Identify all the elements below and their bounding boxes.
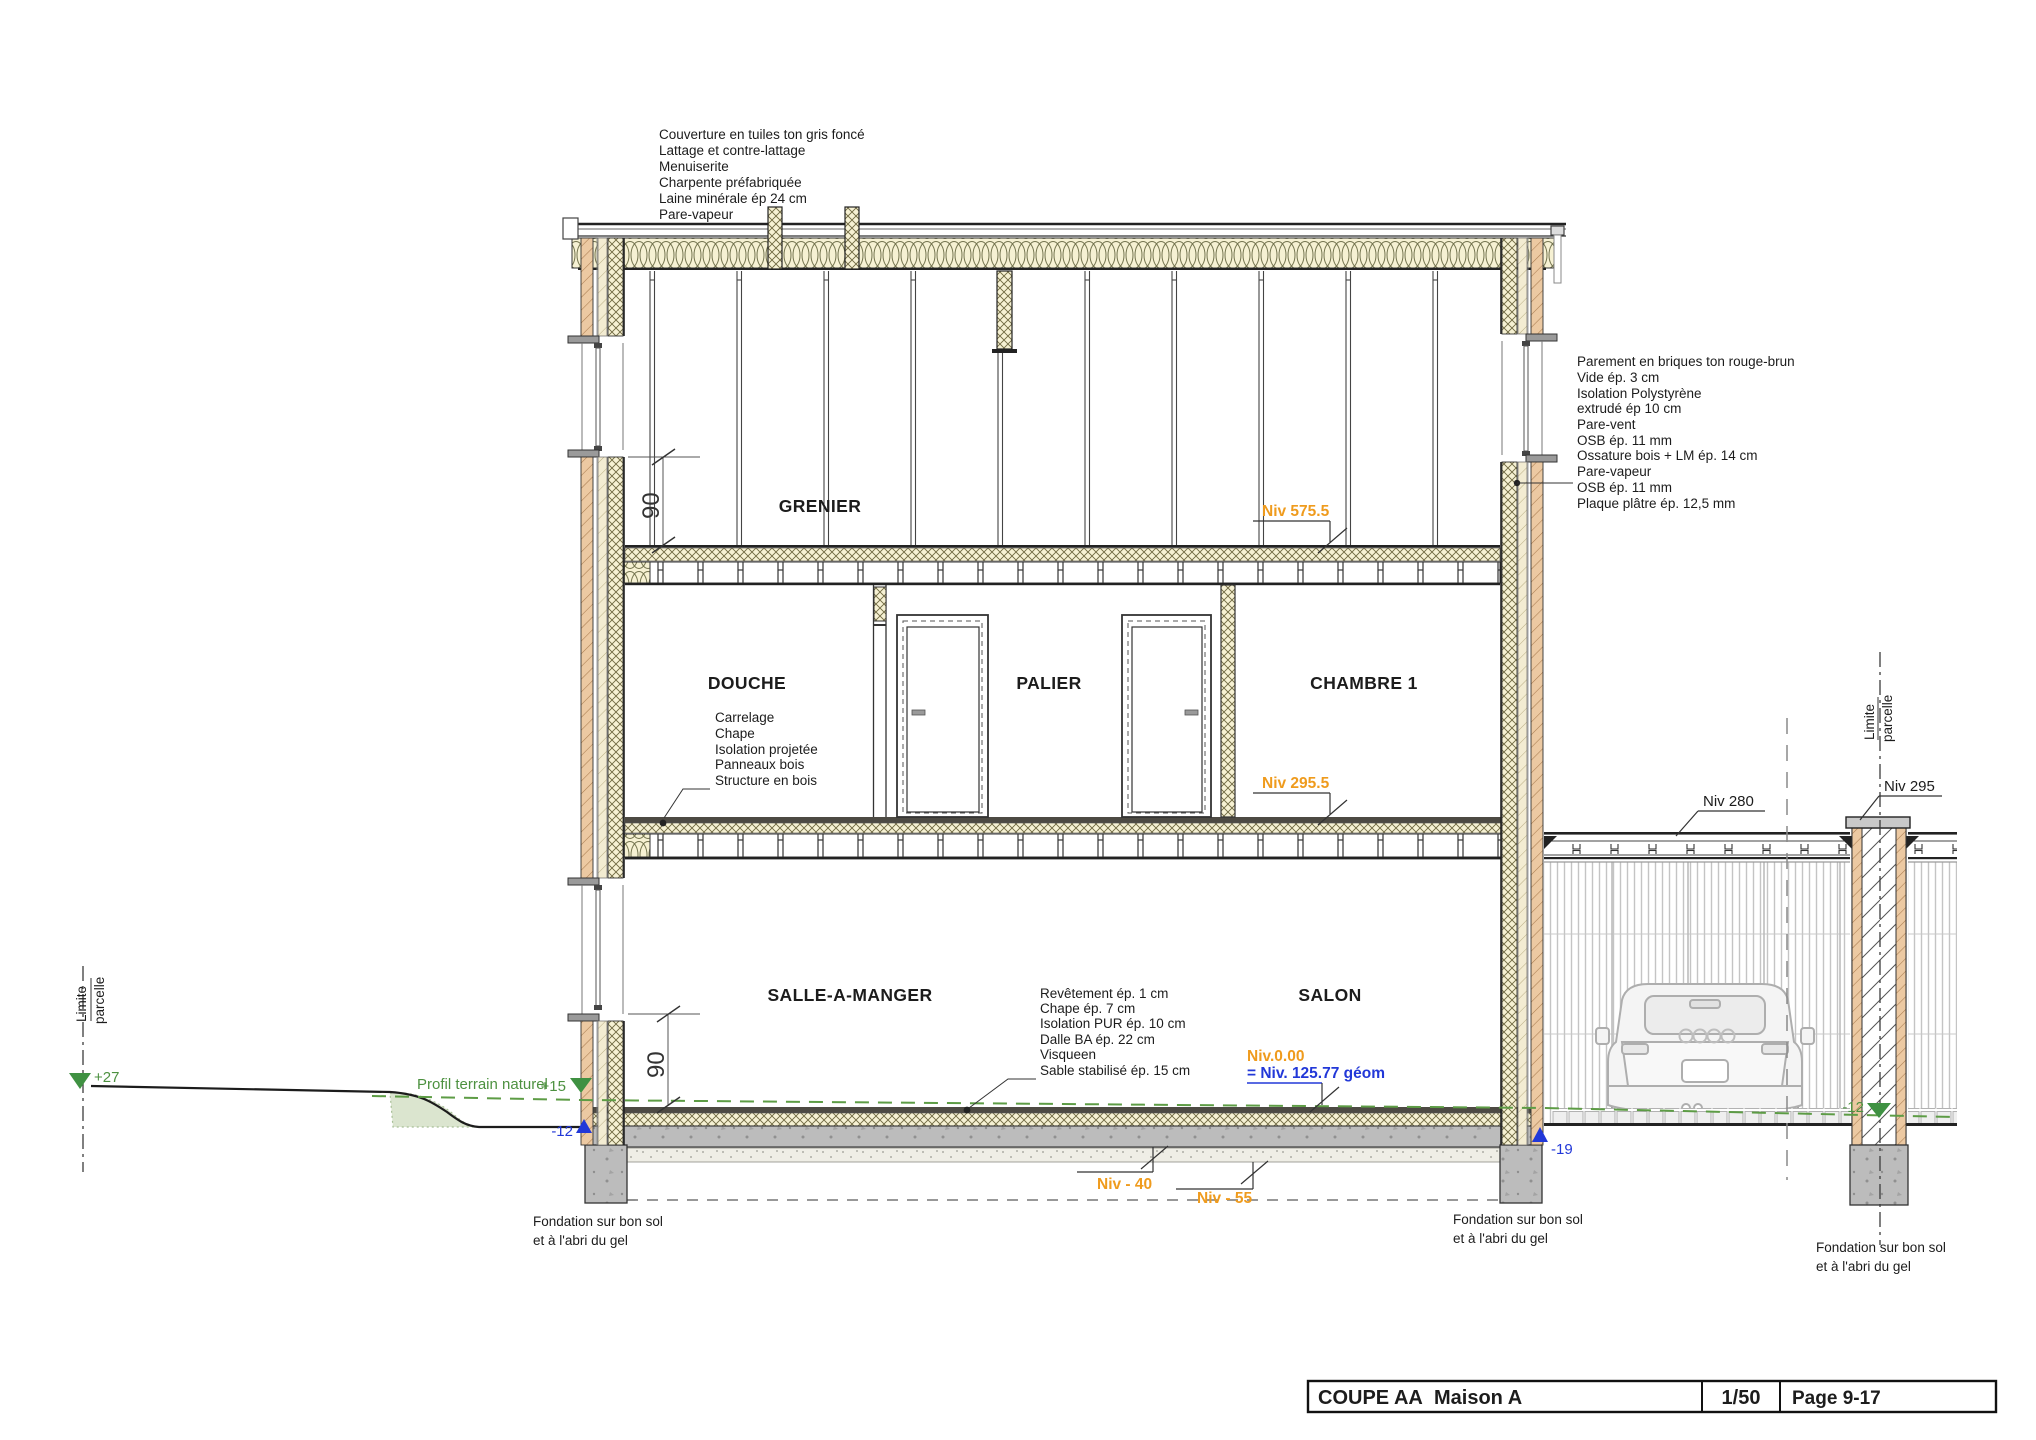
gutter-right xyxy=(1554,235,1561,283)
marker-minus12-right: -12 xyxy=(1842,1099,1864,1116)
foundation-right xyxy=(1500,1145,1542,1203)
boundary-left-label-1: Limite xyxy=(74,986,89,1022)
slab-note: Revêtement ép. 1 cm Chape ép. 7 cm Isola… xyxy=(964,986,1190,1113)
level-sand-bottom-text: Niv - 55 xyxy=(1197,1190,1253,1207)
wall-note-line: Ossature bois + LM ép. 14 cm xyxy=(1577,448,1757,463)
attic-floor xyxy=(613,545,1500,585)
marker-minus12-left: -12 xyxy=(551,1123,573,1140)
boundary-right-label-1: Limite xyxy=(1862,704,1877,740)
dim-attic-value: 90 xyxy=(638,492,665,519)
ground-slab xyxy=(582,1107,1542,1203)
dim-ground-value: 90 xyxy=(643,1051,670,1078)
window-head-attic-right xyxy=(1526,334,1557,341)
wall-note-line: Pare-vent xyxy=(1577,417,1636,432)
marker-plus27: +27 xyxy=(94,1069,119,1086)
wall-left-seg-mid xyxy=(581,457,624,878)
boundary-pillar xyxy=(1846,817,1910,1205)
wall-note-line: Parement en briques ton rouge-brun xyxy=(1577,354,1795,369)
car-mirror-left xyxy=(1596,1028,1609,1044)
level-pillar-top-text: Niv 295 xyxy=(1884,778,1935,795)
level-ground-text: Niv.0.00 xyxy=(1247,1048,1304,1065)
car-taillight-left xyxy=(1622,1044,1648,1054)
wall-note-line: Pare-vapeur xyxy=(1577,464,1652,479)
level-carport-roof: Niv 280 xyxy=(1676,793,1765,836)
title-block-title: COUPE AA xyxy=(1318,1387,1423,1409)
door-2-handle xyxy=(1185,710,1198,715)
roof-note-line: Menuiserite xyxy=(659,159,729,174)
car-taillight-right xyxy=(1762,1044,1788,1054)
car-plate xyxy=(1682,1060,1728,1082)
carport xyxy=(1544,652,1957,1245)
partition-palier-chambre xyxy=(1221,585,1235,817)
terrain-profile-label: Profil terrain naturel xyxy=(417,1076,548,1093)
boundary-left-label-2: parcelle xyxy=(92,977,107,1024)
room-label-grenier: GRENIER xyxy=(779,496,862,516)
marker-minus19: -19 xyxy=(1551,1141,1573,1158)
window-attic-right xyxy=(1502,341,1542,456)
car-mirror-right xyxy=(1801,1028,1814,1044)
door-1-leaf xyxy=(907,627,979,812)
level-attic-floor-text: Niv 575.5 xyxy=(1262,503,1330,520)
wall-right-seg-top xyxy=(1501,238,1543,334)
slab-note-line: Isolation PUR ép. 10 cm xyxy=(1040,1016,1186,1031)
foundation-note-line: Fondation sur bon sol xyxy=(1453,1212,1583,1227)
wall-note-line: extrudé ép 10 cm xyxy=(1577,401,1681,416)
dim-ground-90: 90 xyxy=(628,1006,700,1113)
window-head-attic-left xyxy=(568,336,599,343)
window-ground-left xyxy=(582,885,623,1014)
wall-note-line: Plaque plâtre ép. 12,5 mm xyxy=(1577,496,1735,511)
room-label-chambre1: CHAMBRE 1 xyxy=(1310,673,1418,693)
level-ground: Niv.0.00 = Niv. 125.77 géom xyxy=(1247,1048,1385,1112)
roof-duct-2 xyxy=(845,207,859,269)
pillar-foundation xyxy=(1850,1145,1908,1205)
foundation-note-middle: Fondation sur bon sol et à l'abri du gel xyxy=(1453,1212,1583,1246)
wall-note-line: Isolation Polystyrène xyxy=(1577,386,1702,401)
upper-floor-note-line: Structure en bois xyxy=(715,773,817,788)
foundation-note-line: Fondation sur bon sol xyxy=(1816,1240,1946,1255)
boundary-right-label: Limite parcelle xyxy=(1862,695,1895,742)
window-sill-ground-left xyxy=(568,1014,599,1021)
door-2 xyxy=(1122,615,1211,817)
foundation-note-left: Fondation sur bon sol et à l'abri du gel xyxy=(533,1214,663,1248)
level-pillar-top: Niv 295 xyxy=(1860,778,1942,820)
level-slab-bottom-text: Niv - 40 xyxy=(1097,1176,1152,1193)
window-sill-attic-left xyxy=(568,450,599,457)
upper-floor-note-line: Carrelage xyxy=(715,710,774,725)
concrete-slab xyxy=(585,1126,1540,1147)
carport-fence-right xyxy=(1908,862,1957,1123)
roof-note-line: Couverture en tuiles ton gris foncé xyxy=(659,127,865,142)
level-ground-geo-text: = Niv. 125.77 géom xyxy=(1247,1065,1385,1082)
pillar-cap xyxy=(1846,817,1910,828)
slab-note-line: Chape ép. 7 cm xyxy=(1040,1001,1135,1016)
foundation-note-line: Fondation sur bon sol xyxy=(533,1214,663,1229)
foundation-note-line: et à l'abri du gel xyxy=(1816,1259,1911,1274)
door-1-handle xyxy=(912,710,925,715)
boundary-left: Limite parcelle +27 xyxy=(69,966,119,1172)
roof-note-line: Laine minérale ép 24 cm xyxy=(659,191,807,206)
drawing-sheet: Limite parcelle +27 Limite parcelle +15 … xyxy=(0,0,2036,1440)
room-label-salle-a-manger: SALLE-A-MANGER xyxy=(767,985,932,1005)
wall-note: Parement en briques ton rouge-brun Vide … xyxy=(1514,354,1795,511)
roof-note: Couverture en tuiles ton gris foncé Latt… xyxy=(659,127,865,222)
roof-note-line: Charpente préfabriquée xyxy=(659,175,802,190)
window-sill-attic-right xyxy=(1526,455,1557,462)
door-2-leaf xyxy=(1132,627,1202,812)
upper-floor-note: Carrelage Chape Isolation projetée Panne… xyxy=(660,710,818,826)
marker-plus27-arrow xyxy=(69,1073,91,1089)
window-attic-left xyxy=(582,343,623,451)
partition-douche-palier xyxy=(874,585,887,817)
eave-left xyxy=(563,218,578,239)
roof-insulation xyxy=(572,238,1560,268)
slab-note-line: Revêtement ép. 1 cm xyxy=(1040,986,1168,1001)
eave-right xyxy=(1551,226,1564,235)
section-drawing: Limite parcelle +27 Limite parcelle +15 … xyxy=(0,0,2036,1440)
title-block-variant: Maison A xyxy=(1434,1387,1522,1409)
upper-floor-note-line: Panneaux bois xyxy=(715,757,805,772)
room-label-douche: DOUCHE xyxy=(708,673,786,693)
slab-note-line: Visqueen xyxy=(1040,1047,1096,1062)
attic-duct xyxy=(997,271,1012,349)
foundation-note-right: Fondation sur bon sol et à l'abri du gel xyxy=(1816,1240,1946,1274)
slab-note-line: Dalle BA ép. 22 cm xyxy=(1040,1032,1155,1047)
wall-note-line: OSB ép. 11 mm xyxy=(1577,480,1672,495)
roof-note-line: Pare-vapeur xyxy=(659,207,734,222)
title-block-scale: 1/50 xyxy=(1722,1387,1761,1409)
foundation-note-line: et à l'abri du gel xyxy=(1453,1231,1548,1246)
title-block: COUPE AA Maison A 1/50 Page 9-17 xyxy=(1308,1381,1996,1412)
slab-note-line: Sable stabilisé ép. 15 cm xyxy=(1040,1063,1190,1078)
roof-note-line: Lattage et contre-lattage xyxy=(659,143,805,158)
door-1 xyxy=(897,615,988,817)
sand-layer xyxy=(627,1148,1502,1162)
wall-note-line: OSB ép. 11 mm xyxy=(1577,433,1672,448)
level-upper-floor-text: Niv 295.5 xyxy=(1262,775,1330,792)
upper-floor-note-line: Isolation projetée xyxy=(715,742,818,757)
wall-left xyxy=(568,238,624,1145)
foundation-left xyxy=(585,1145,627,1203)
window-head-ground-left xyxy=(568,878,599,885)
upper-floor-note-line: Chape xyxy=(715,726,755,741)
room-label-salon: SALON xyxy=(1298,985,1361,1005)
pavers-left xyxy=(1552,1108,1850,1123)
level-carport-roof-text: Niv 280 xyxy=(1703,793,1754,810)
roof-trusses xyxy=(628,271,1500,545)
upper-floor xyxy=(613,817,1502,859)
foundation-note-line: et à l'abri du gel xyxy=(533,1233,628,1248)
roof-duct-1 xyxy=(768,207,782,269)
room-label-palier: PALIER xyxy=(1016,673,1081,693)
wall-left-seg-top xyxy=(581,238,624,336)
wall-right-seg-bottom xyxy=(1501,462,1543,1145)
title-block-page: Page 9-17 xyxy=(1792,1388,1881,1409)
car xyxy=(1596,984,1814,1122)
wall-note-line: Vide ép. 3 cm xyxy=(1577,370,1659,385)
boundary-right-label-2: parcelle xyxy=(1880,695,1895,742)
